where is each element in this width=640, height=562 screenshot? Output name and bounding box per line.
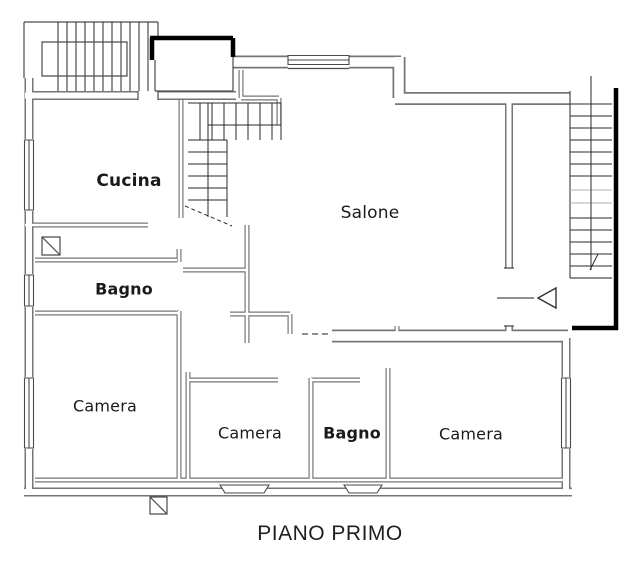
room-label-bagno-left: Bagno (95, 280, 153, 299)
entrance-arrow-icon (538, 288, 556, 308)
room-label-camera-right: Camera (439, 425, 503, 444)
room-label-salone: Salone (341, 203, 400, 223)
stairs-central (185, 103, 281, 226)
floor-plan-image: Cucina Salone Bagno Camera Camera Bagno … (0, 0, 640, 562)
floor-caption: PIANO PRIMO (257, 522, 403, 546)
stairs-right (570, 91, 612, 270)
room-label-bagno-bottom: Bagno (323, 424, 381, 443)
room-label-camera-left: Camera (73, 397, 137, 416)
stairs-top-left (42, 22, 148, 91)
room-label-camera-center: Camera (218, 424, 282, 443)
room-label-cucina: Cucina (96, 171, 161, 191)
thick-walls (150, 38, 618, 330)
